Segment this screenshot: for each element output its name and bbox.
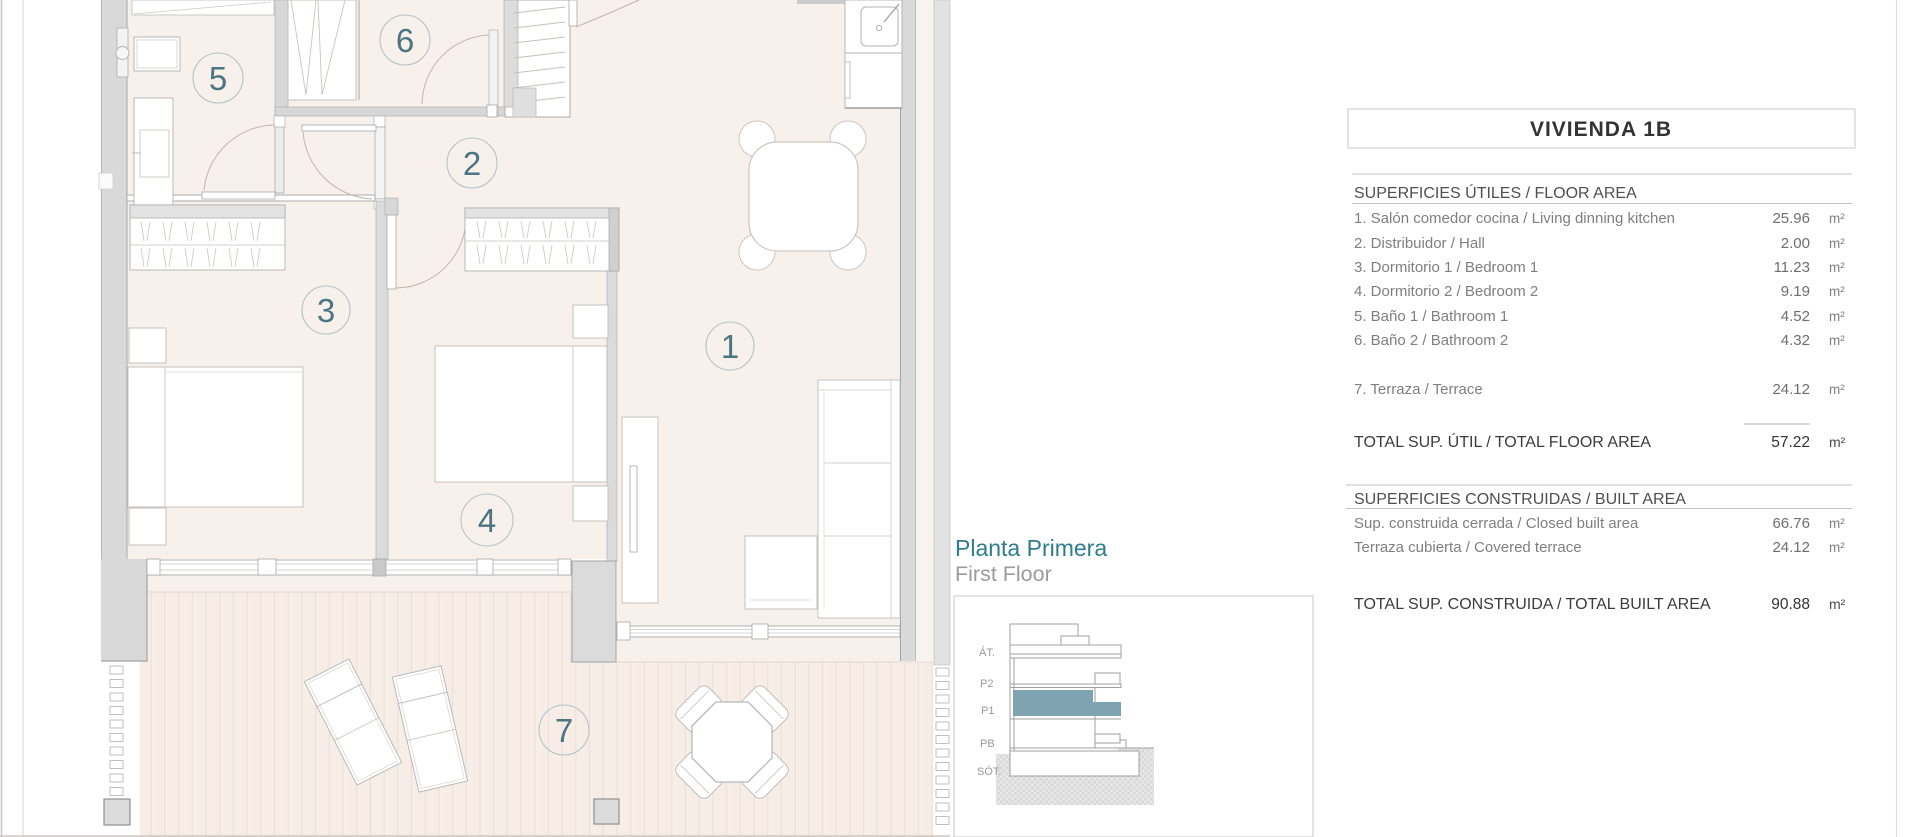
svg-text:4.52: 4.52 bbox=[1781, 308, 1810, 325]
svg-text:m²: m² bbox=[1829, 382, 1845, 397]
svg-text:m²: m² bbox=[1829, 434, 1846, 450]
svg-text:4: 4 bbox=[478, 502, 496, 539]
svg-text:25.96: 25.96 bbox=[1772, 210, 1810, 227]
svg-text:4. Dormitorio 2 / Bedroom 2: 4. Dormitorio 2 / Bedroom 2 bbox=[1354, 283, 1538, 300]
svg-text:SUPERFICIES ÚTILES / FLOOR ARE: SUPERFICIES ÚTILES / FLOOR AREA bbox=[1354, 183, 1637, 202]
svg-text:SÓT.: SÓT. bbox=[977, 765, 1001, 778]
svg-text:7: 7 bbox=[555, 712, 573, 749]
svg-text:P1: P1 bbox=[981, 705, 994, 717]
svg-text:TOTAL SUP. ÚTIL / TOTAL FLOOR: TOTAL SUP. ÚTIL / TOTAL FLOOR AREA bbox=[1354, 432, 1651, 451]
svg-text:24.12: 24.12 bbox=[1772, 539, 1810, 556]
svg-text:TOTAL SUP. CONSTRUIDA / TOTAL: TOTAL SUP. CONSTRUIDA / TOTAL BUILT AREA bbox=[1354, 596, 1711, 613]
svg-text:VIVIENDA 1B: VIVIENDA 1B bbox=[1530, 118, 1672, 141]
svg-text:PB: PB bbox=[980, 738, 995, 750]
svg-text:m²: m² bbox=[1829, 540, 1845, 555]
svg-text:2.00: 2.00 bbox=[1781, 235, 1810, 252]
svg-text:SUPERFICIES CONSTRUIDAS / BUIL: SUPERFICIES CONSTRUIDAS / BUILT AREA bbox=[1354, 491, 1686, 508]
svg-text:ÁT.: ÁT. bbox=[979, 646, 995, 659]
svg-text:Sup. construida cerrada / Clos: Sup. construida cerrada / Closed built a… bbox=[1354, 515, 1639, 532]
svg-text:7. Terraza / Terrace: 7. Terraza / Terrace bbox=[1354, 381, 1483, 398]
svg-text:m²: m² bbox=[1829, 309, 1845, 324]
svg-text:m²: m² bbox=[1829, 596, 1846, 612]
svg-text:9.19: 9.19 bbox=[1781, 283, 1810, 300]
svg-text:11.23: 11.23 bbox=[1774, 259, 1810, 276]
svg-text:90.88: 90.88 bbox=[1771, 596, 1810, 613]
svg-text:3. Dormitorio 1 / Bedroom 1: 3. Dormitorio 1 / Bedroom 1 bbox=[1354, 259, 1538, 276]
svg-text:2: 2 bbox=[463, 145, 481, 182]
svg-text:m²: m² bbox=[1829, 284, 1845, 299]
svg-text:6. Baño 2 / Bathroom 2: 6. Baño 2 / Bathroom 2 bbox=[1354, 332, 1508, 349]
svg-text:Planta Primera: Planta Primera bbox=[955, 535, 1107, 561]
svg-text:2. Distribuidor / Hall: 2. Distribuidor / Hall bbox=[1354, 235, 1485, 252]
svg-text:5: 5 bbox=[209, 60, 227, 97]
svg-text:6: 6 bbox=[396, 22, 414, 59]
svg-text:m²: m² bbox=[1829, 516, 1845, 531]
svg-text:First Floor: First Floor bbox=[955, 562, 1052, 586]
svg-text:m²: m² bbox=[1829, 211, 1845, 226]
svg-text:5. Baño 1 / Bathroom 1: 5. Baño 1 / Bathroom 1 bbox=[1354, 308, 1508, 325]
svg-text:P2: P2 bbox=[980, 678, 993, 690]
svg-text:3: 3 bbox=[317, 292, 335, 329]
svg-text:m²: m² bbox=[1829, 260, 1845, 275]
svg-text:Terraza cubierta / Covered ter: Terraza cubierta / Covered terrace bbox=[1354, 539, 1582, 556]
svg-text:m²: m² bbox=[1829, 236, 1845, 251]
svg-text:57.22: 57.22 bbox=[1771, 434, 1810, 451]
svg-text:1: 1 bbox=[721, 328, 739, 365]
svg-text:4.32: 4.32 bbox=[1781, 332, 1810, 349]
svg-text:24.12: 24.12 bbox=[1772, 381, 1810, 398]
svg-text:1. Salón comedor cocina / Livi: 1. Salón comedor cocina / Living dinning… bbox=[1354, 210, 1675, 227]
svg-text:66.76: 66.76 bbox=[1772, 515, 1810, 532]
svg-text:m²: m² bbox=[1829, 333, 1845, 348]
